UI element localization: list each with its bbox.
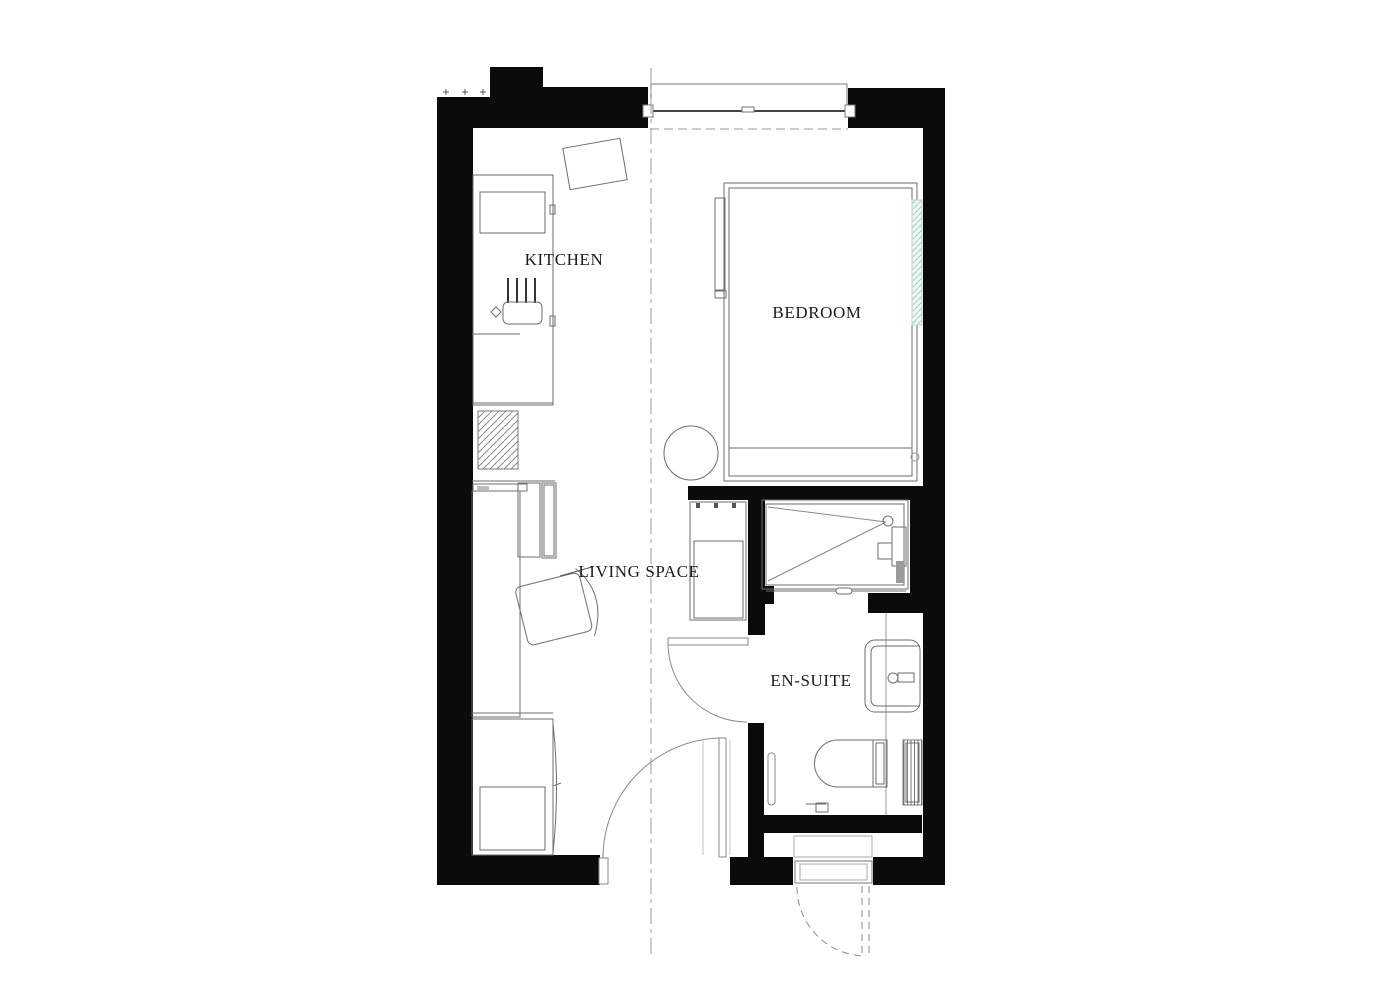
entry-door-leaf <box>719 738 726 857</box>
kitchen-fixtures <box>472 138 627 469</box>
room-label-bedroom: BEDROOM <box>772 303 861 323</box>
kitchen-hatch-floor <box>478 411 518 469</box>
kitchen-table <box>563 138 627 189</box>
shower-head <box>883 516 893 526</box>
ensuite-door-arc <box>668 645 747 722</box>
bed <box>724 183 917 481</box>
shelf-unit <box>518 483 540 557</box>
hall-cabinet <box>690 502 746 620</box>
ensuite-door-leaf <box>668 638 748 645</box>
hob-base <box>503 302 542 324</box>
wall-right <box>923 88 945 885</box>
shower-door-handle <box>836 588 852 594</box>
survey-ticks <box>443 89 486 95</box>
shower <box>762 500 908 594</box>
entrance-recess <box>794 836 872 857</box>
desk-stool <box>480 787 545 850</box>
door-jamb <box>599 858 608 884</box>
sink-tap <box>888 673 898 683</box>
window-reveal-right <box>845 105 855 117</box>
wall-shower-pier <box>910 498 923 595</box>
wall-bottom-right <box>873 857 945 885</box>
floor-plan-drawing <box>0 0 1380 1000</box>
entry-door-arc <box>603 738 723 858</box>
kitchen-counter <box>473 175 553 405</box>
wall-divider-horizontal <box>688 486 923 500</box>
room-label-kitchen: KITCHEN <box>525 250 604 270</box>
ensuite-fixtures <box>768 613 922 815</box>
grab-bar <box>768 753 775 805</box>
room-label-en-suite: EN-SUITE <box>770 671 851 691</box>
hob-knob <box>491 307 501 317</box>
wall-bottom-left <box>437 855 600 885</box>
toilet-bowl <box>814 740 873 787</box>
window <box>643 84 855 129</box>
wall-divider-vertical-lower <box>748 723 764 857</box>
hob <box>508 278 535 303</box>
floor-plan-canvas: KITCHEN BEDROOM LIVING SPACE EN-SUITE <box>0 0 1380 1000</box>
room-label-living-space: LIVING SPACE <box>578 562 699 582</box>
exterior-door <box>797 886 869 956</box>
shower-diagonals <box>768 507 886 581</box>
shower-tray <box>762 500 908 589</box>
wall-ensuite-inner-bottom <box>762 815 922 833</box>
wall-left <box>437 97 473 885</box>
exterior-door-arc <box>797 887 866 956</box>
tall-unit <box>472 491 520 717</box>
wall-below-shower <box>868 593 945 613</box>
kitchen-sink <box>480 192 545 233</box>
wall-entry-block <box>730 857 793 885</box>
cabinet-door-bow <box>553 723 557 853</box>
bedroom-fixtures <box>715 183 922 481</box>
window-center-joint <box>742 107 754 112</box>
round-table <box>664 426 718 480</box>
wall-top-mid <box>543 87 648 128</box>
toilet-cistern <box>873 740 887 787</box>
radiator-bedroom <box>912 200 922 325</box>
wall-chimney-block <box>490 67 543 128</box>
